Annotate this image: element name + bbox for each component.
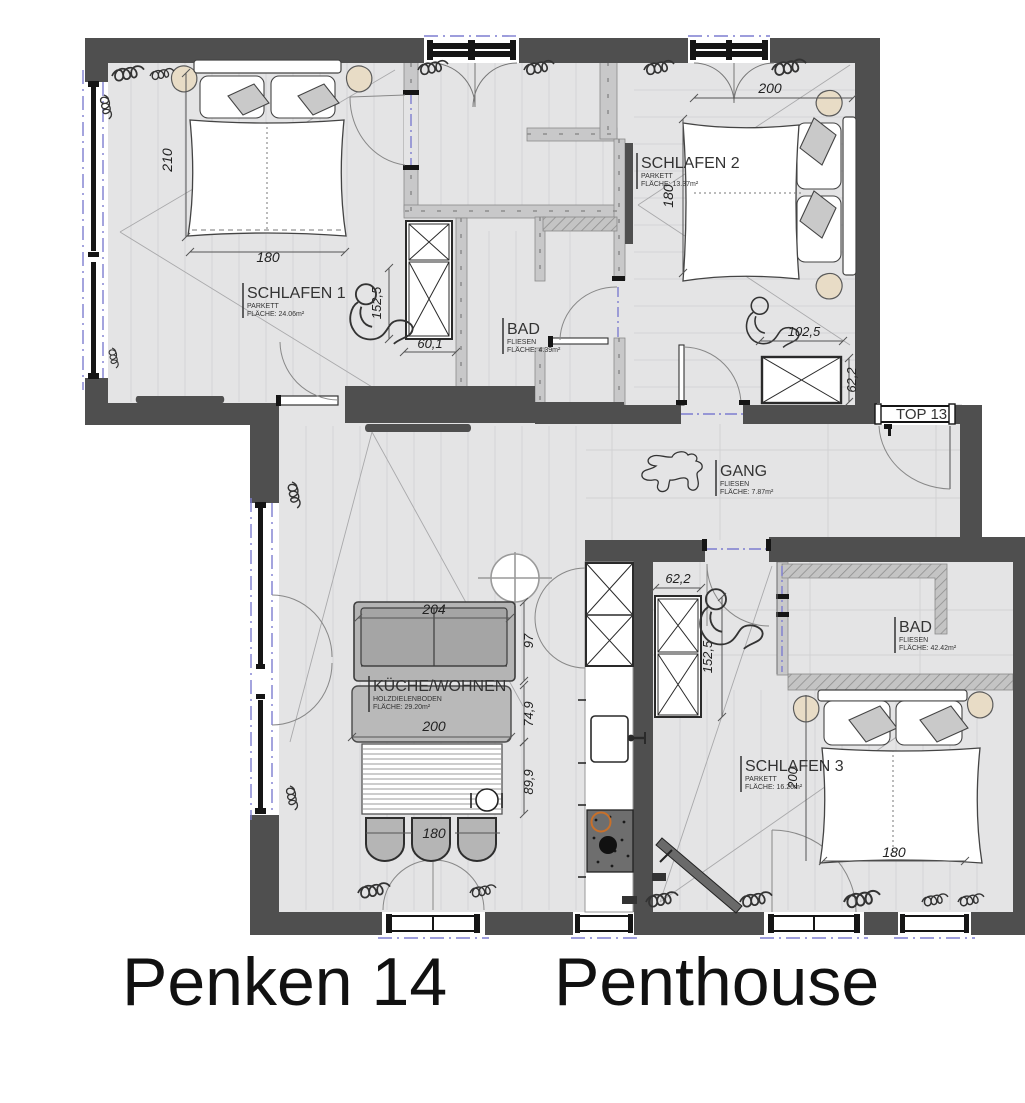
- svg-text:102,5: 102,5: [788, 324, 821, 339]
- svg-text:FLÄCHE: 16.26m²: FLÄCHE: 16.26m²: [745, 783, 803, 791]
- svg-text:HOLZDIELENBODEN: HOLZDIELENBODEN: [373, 696, 442, 703]
- svg-text:FLÄCHE: 13.37m²: FLÄCHE: 13.37m²: [641, 180, 699, 188]
- svg-text:SCHLAFEN 2: SCHLAFEN 2: [641, 155, 740, 172]
- svg-text:PARKETT: PARKETT: [641, 173, 673, 180]
- svg-text:FLÄCHE: 4.39m²: FLÄCHE: 4.39m²: [507, 346, 561, 354]
- svg-text:60,1: 60,1: [417, 336, 442, 351]
- svg-text:180: 180: [422, 825, 446, 841]
- svg-text:GANG: GANG: [720, 463, 767, 480]
- svg-text:TOP 13: TOP 13: [896, 406, 947, 423]
- svg-text:89,9: 89,9: [521, 769, 536, 794]
- svg-text:FLÄCHE: 29.20m²: FLÄCHE: 29.20m²: [373, 703, 431, 711]
- svg-text:FLÄCHE: 24.06m²: FLÄCHE: 24.06m²: [247, 310, 305, 318]
- svg-text:PARKETT: PARKETT: [745, 776, 777, 783]
- svg-text:210: 210: [159, 148, 175, 173]
- svg-text:62,2: 62,2: [844, 367, 859, 393]
- svg-text:152,5: 152,5: [700, 640, 715, 673]
- svg-text:204: 204: [421, 601, 446, 617]
- svg-text:97: 97: [521, 633, 536, 648]
- svg-text:180: 180: [256, 249, 280, 265]
- svg-text:FLÄCHE: 42.42m²: FLÄCHE: 42.42m²: [899, 644, 957, 652]
- svg-text:FLIESEN: FLIESEN: [507, 339, 536, 346]
- svg-text:180: 180: [882, 844, 906, 860]
- svg-text:BAD: BAD: [507, 321, 540, 338]
- svg-text:FLIESEN: FLIESEN: [899, 637, 928, 644]
- svg-text:62,2: 62,2: [665, 571, 691, 586]
- svg-text:SCHLAFEN 3: SCHLAFEN 3: [745, 758, 844, 775]
- svg-text:FLIESEN: FLIESEN: [720, 481, 749, 488]
- svg-text:200: 200: [757, 80, 782, 96]
- svg-text:FLÄCHE: 7.87m²: FLÄCHE: 7.87m²: [720, 488, 774, 496]
- svg-text:SCHLAFEN 1: SCHLAFEN 1: [247, 285, 346, 302]
- svg-text:BAD: BAD: [899, 619, 932, 636]
- svg-text:PARKETT: PARKETT: [247, 303, 279, 310]
- svg-text:KÜCHE/WOHNEN: KÜCHE/WOHNEN: [373, 677, 506, 695]
- svg-text:200: 200: [421, 718, 446, 734]
- svg-text:74,9: 74,9: [521, 701, 536, 726]
